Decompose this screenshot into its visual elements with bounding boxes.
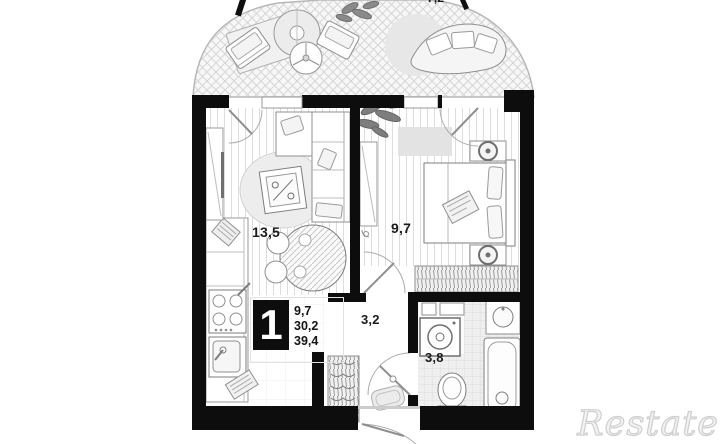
wall-top-bedroom-a [358,95,404,108]
tv-bench-icon [206,128,224,220]
nightstand-lamp-icon [470,245,506,265]
area-value: 9,7 [294,304,318,319]
bedroom-area-label: 9,7 [391,220,411,236]
wall-left [192,95,206,410]
coffee-table-icon [259,166,306,213]
wall-top-bedroom-b [438,95,442,108]
watermark-logo: Restate [577,404,719,444]
wall-top-living-a [206,95,229,108]
kitchen-sink-icon [209,337,246,377]
shelf-icon [422,303,464,315]
stove-icon [209,283,250,333]
bathroom-area-label: 3,8 [425,350,444,365]
wall-partition [350,108,360,293]
wall-bath-top [408,292,534,302]
wall-bottom-right [420,406,534,430]
wall-top-bedroom-corner [504,90,534,112]
balcony [193,0,534,97]
bedroom-window [404,97,438,108]
balcony-area-label: 7,2 [427,0,444,5]
area-value: 30,2 [294,319,318,334]
console-icon [360,142,377,237]
bath-sink-icon [486,300,520,334]
entrance-threshold [358,406,420,409]
chair-icon [265,261,287,283]
double-bed-icon [424,160,515,246]
floor-plan-drawing [0,0,725,444]
wall-bottom-left [192,406,358,430]
nightstand-lamp-icon [470,141,506,161]
floor-plan-canvas: 7,2 13,5 9,7 3,2 3,8 1 9,7 30,2 39,4 Res… [0,0,725,444]
entrance-door-arc [362,424,416,444]
wall-bath-left-a [408,302,418,353]
bathtub-icon [484,338,520,416]
apartment-info-block: 1 9,7 30,2 39,4 [250,297,344,363]
hall-area-label: 3,2 [361,312,380,327]
window-sill-living [262,97,302,108]
rug-icon [398,127,452,156]
wall-right [520,90,534,410]
area-value: 39,4 [294,334,318,349]
living-area-label: 13,5 [252,224,280,240]
wall-top-living-b [302,95,360,108]
wardrobe-icon [415,266,518,292]
fan-table-icon [290,42,322,74]
area-values: 9,7 30,2 39,4 [294,300,318,352]
rooms-count-badge: 1 [253,300,289,350]
